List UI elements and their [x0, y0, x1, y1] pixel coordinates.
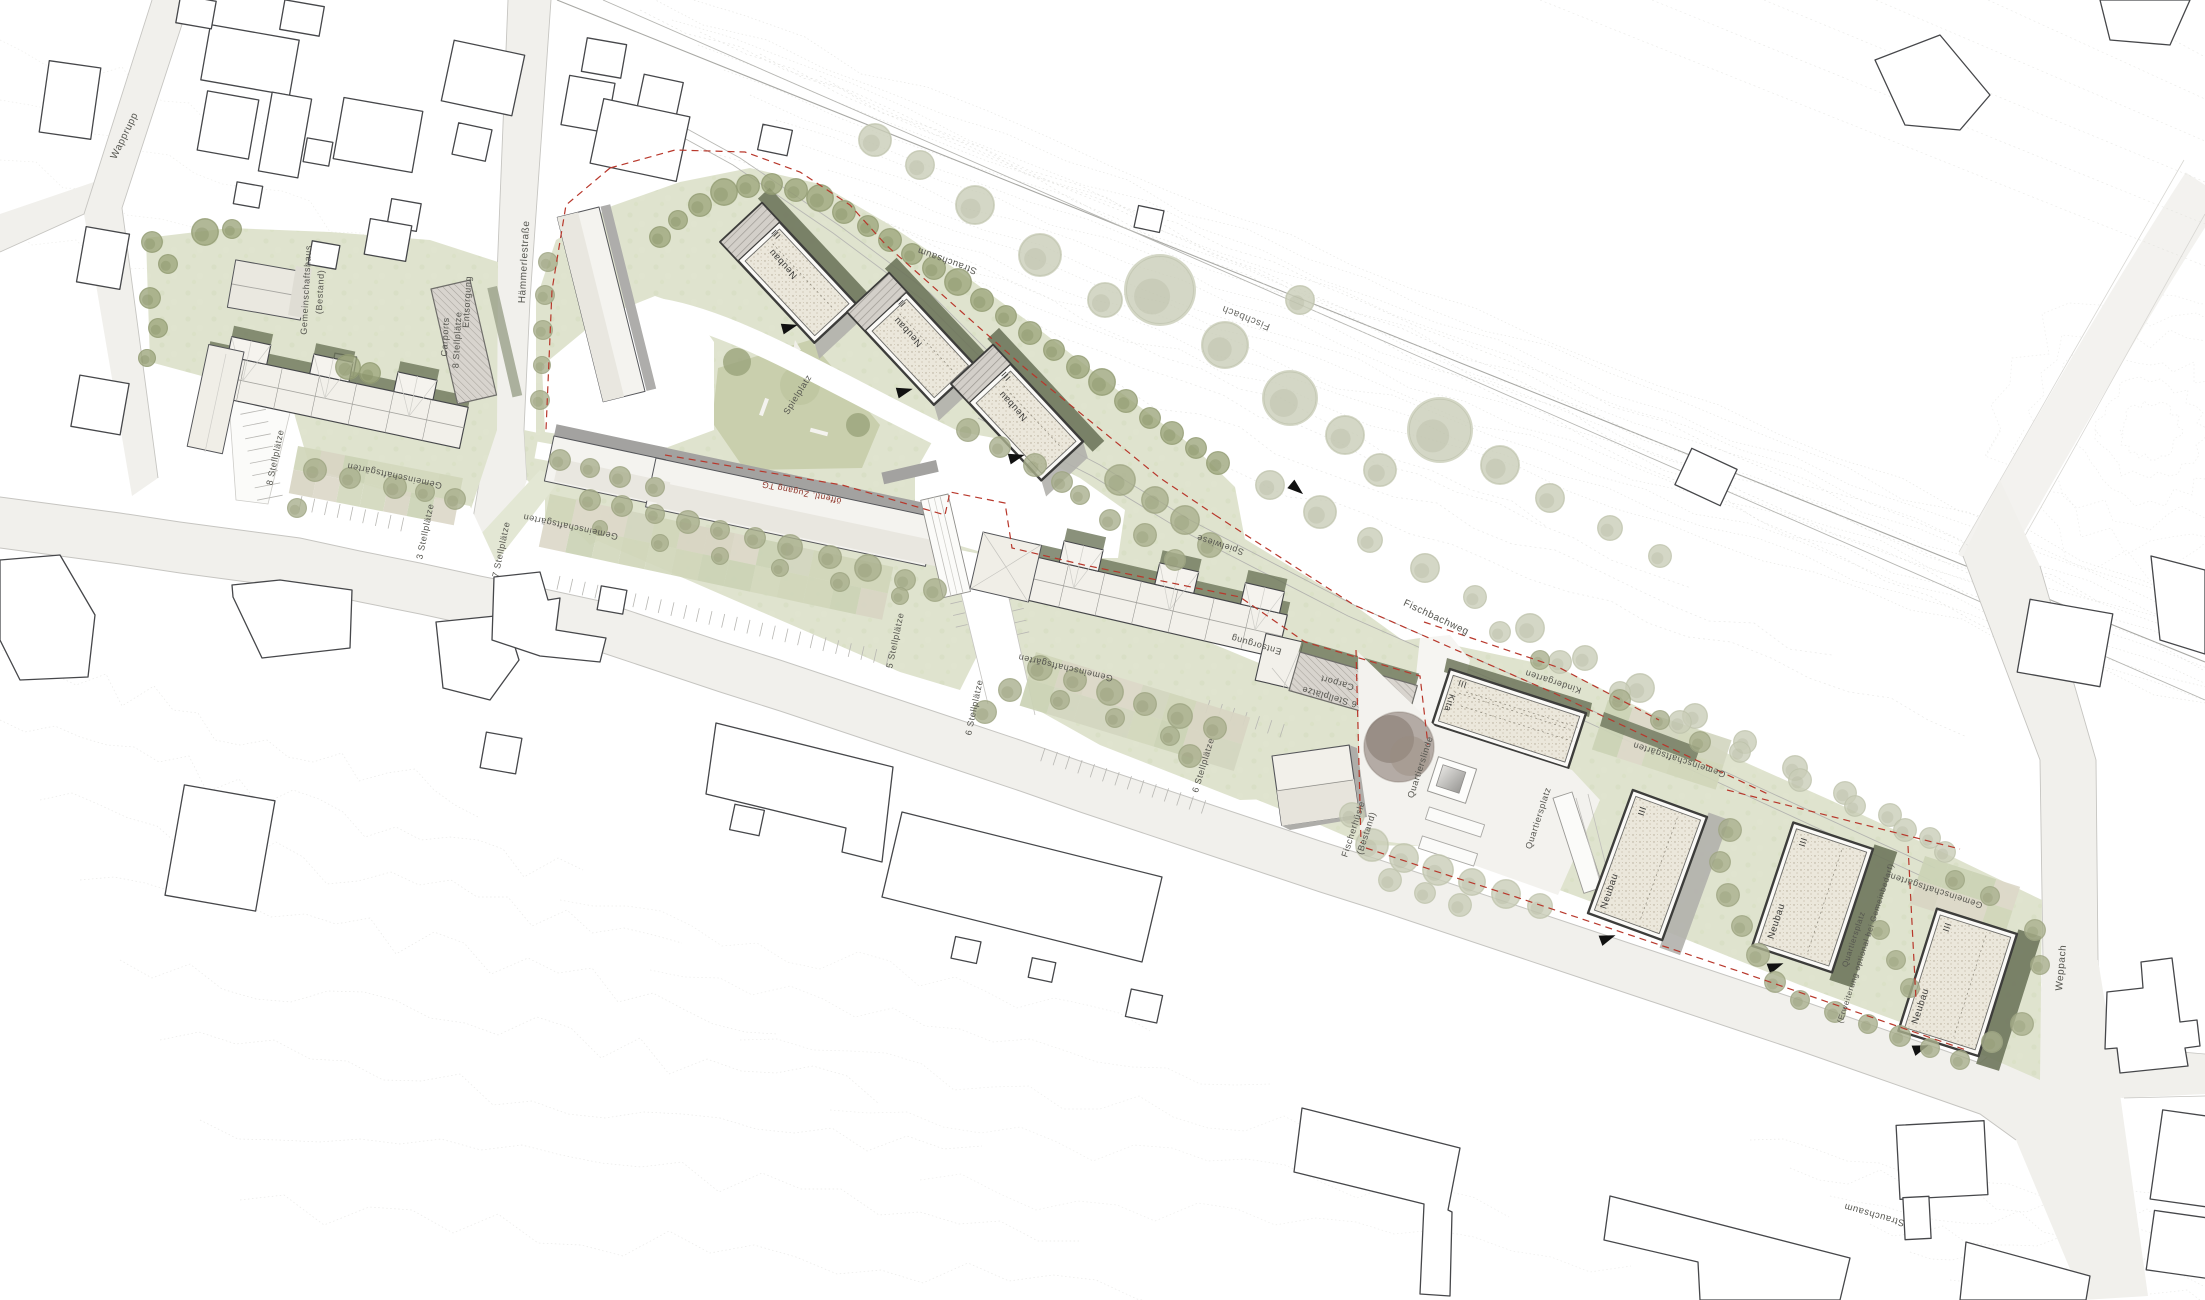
svg-text:Carports: Carports: [439, 317, 451, 357]
